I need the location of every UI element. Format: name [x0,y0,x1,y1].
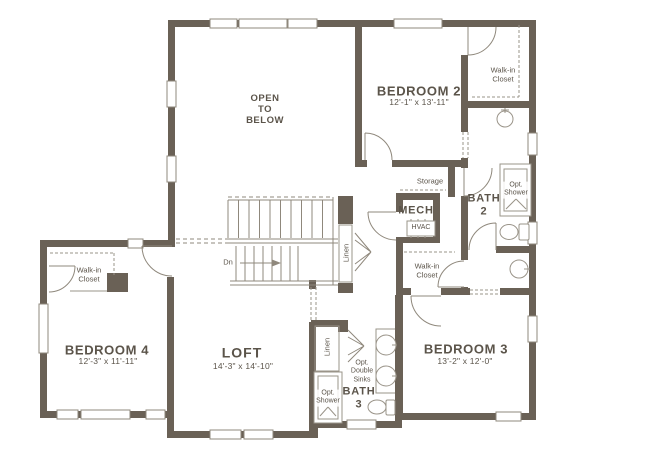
opening-loft-hall [311,287,316,321]
stairs-upper-treads [228,200,323,238]
linen-bath3-bifold [348,330,364,362]
stairs [176,197,338,285]
walls [40,20,536,438]
linen-stairs-bifold [355,233,371,271]
floor-plan-drawing [0,0,646,451]
hvac-unit [407,219,435,238]
opening-bedroom2-hall [463,132,468,158]
stairs-down-arrow [240,260,281,267]
mech-door [368,212,396,240]
stairs-opening-dashed [176,197,333,243]
toilet-bath2 [500,224,529,240]
water-closet-door [469,223,496,250]
bedroom4-door [142,246,172,276]
bedroom2-door [365,133,392,160]
toilet-bath3 [368,400,395,415]
shower-bath2 [500,164,531,216]
floor-plan: OPEN TO BELOW BEDROOM 2 12'-1" x 13'-11"… [0,0,646,451]
closet-rod-top-right [472,25,519,97]
sink-water-closet [510,260,530,278]
bath2-door [464,168,492,196]
opening-bedroom3 [470,290,498,294]
sink-hall-top [497,108,513,127]
shower-bath3 [314,372,342,423]
walkin-mid-right-door [438,261,464,287]
walkin-left-door [49,266,75,292]
bedroom3-door [411,296,441,326]
linen-bath3-box [315,326,339,371]
vanity-bath3 [376,329,397,393]
linen-stairs-box [339,225,352,282]
closet-rod-left [50,253,114,275]
walkin-top-right-door [468,27,496,55]
fixtures [314,108,531,423]
